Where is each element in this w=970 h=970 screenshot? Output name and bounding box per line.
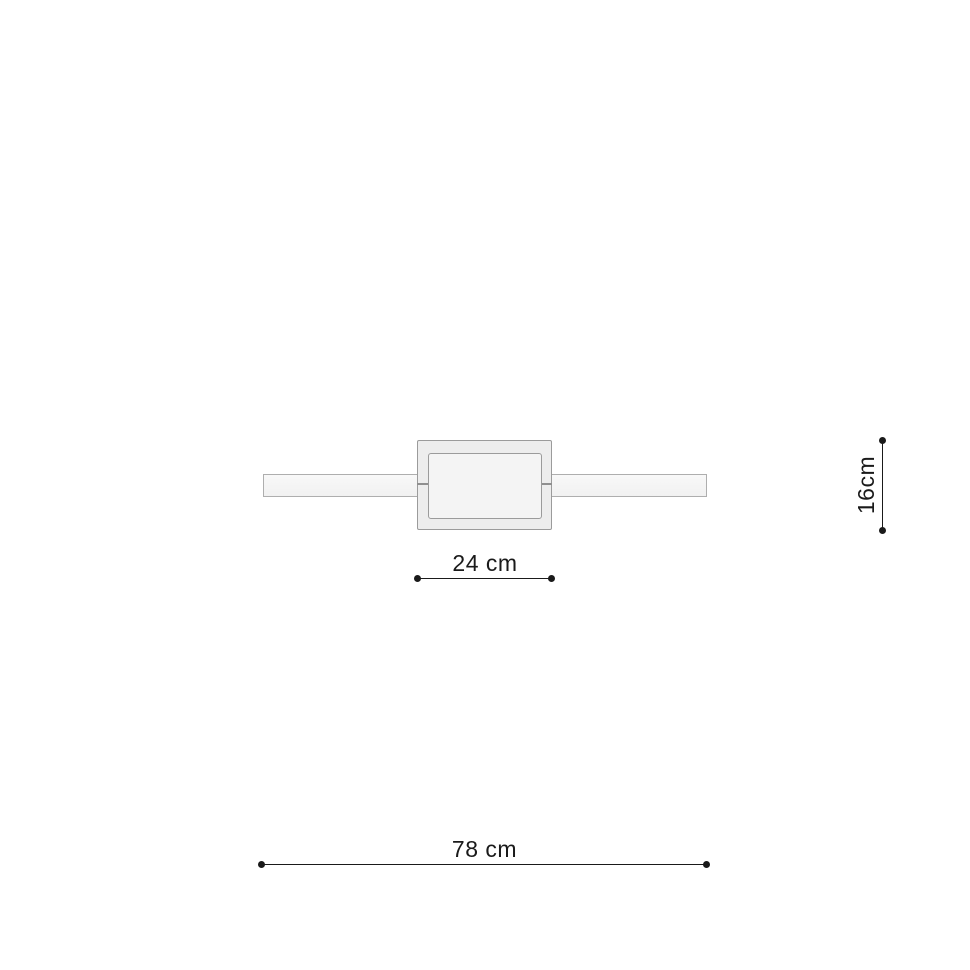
dim-endpoint-dot <box>879 437 886 444</box>
dim-endpoint-dot <box>879 527 886 534</box>
dim-line-total-width <box>262 864 707 865</box>
lamp-dimension-diagram: 24 cm 16cm 78 cm <box>0 0 970 970</box>
canopy-panel <box>428 453 542 519</box>
dim-label-total-width: 78 cm <box>262 836 707 863</box>
dim-line-fixture-height <box>882 440 883 530</box>
dim-label-canopy-width: 24 cm <box>418 550 552 577</box>
dim-label-fixture-height: 16cm <box>854 440 878 530</box>
dim-line-canopy-width <box>418 578 552 579</box>
